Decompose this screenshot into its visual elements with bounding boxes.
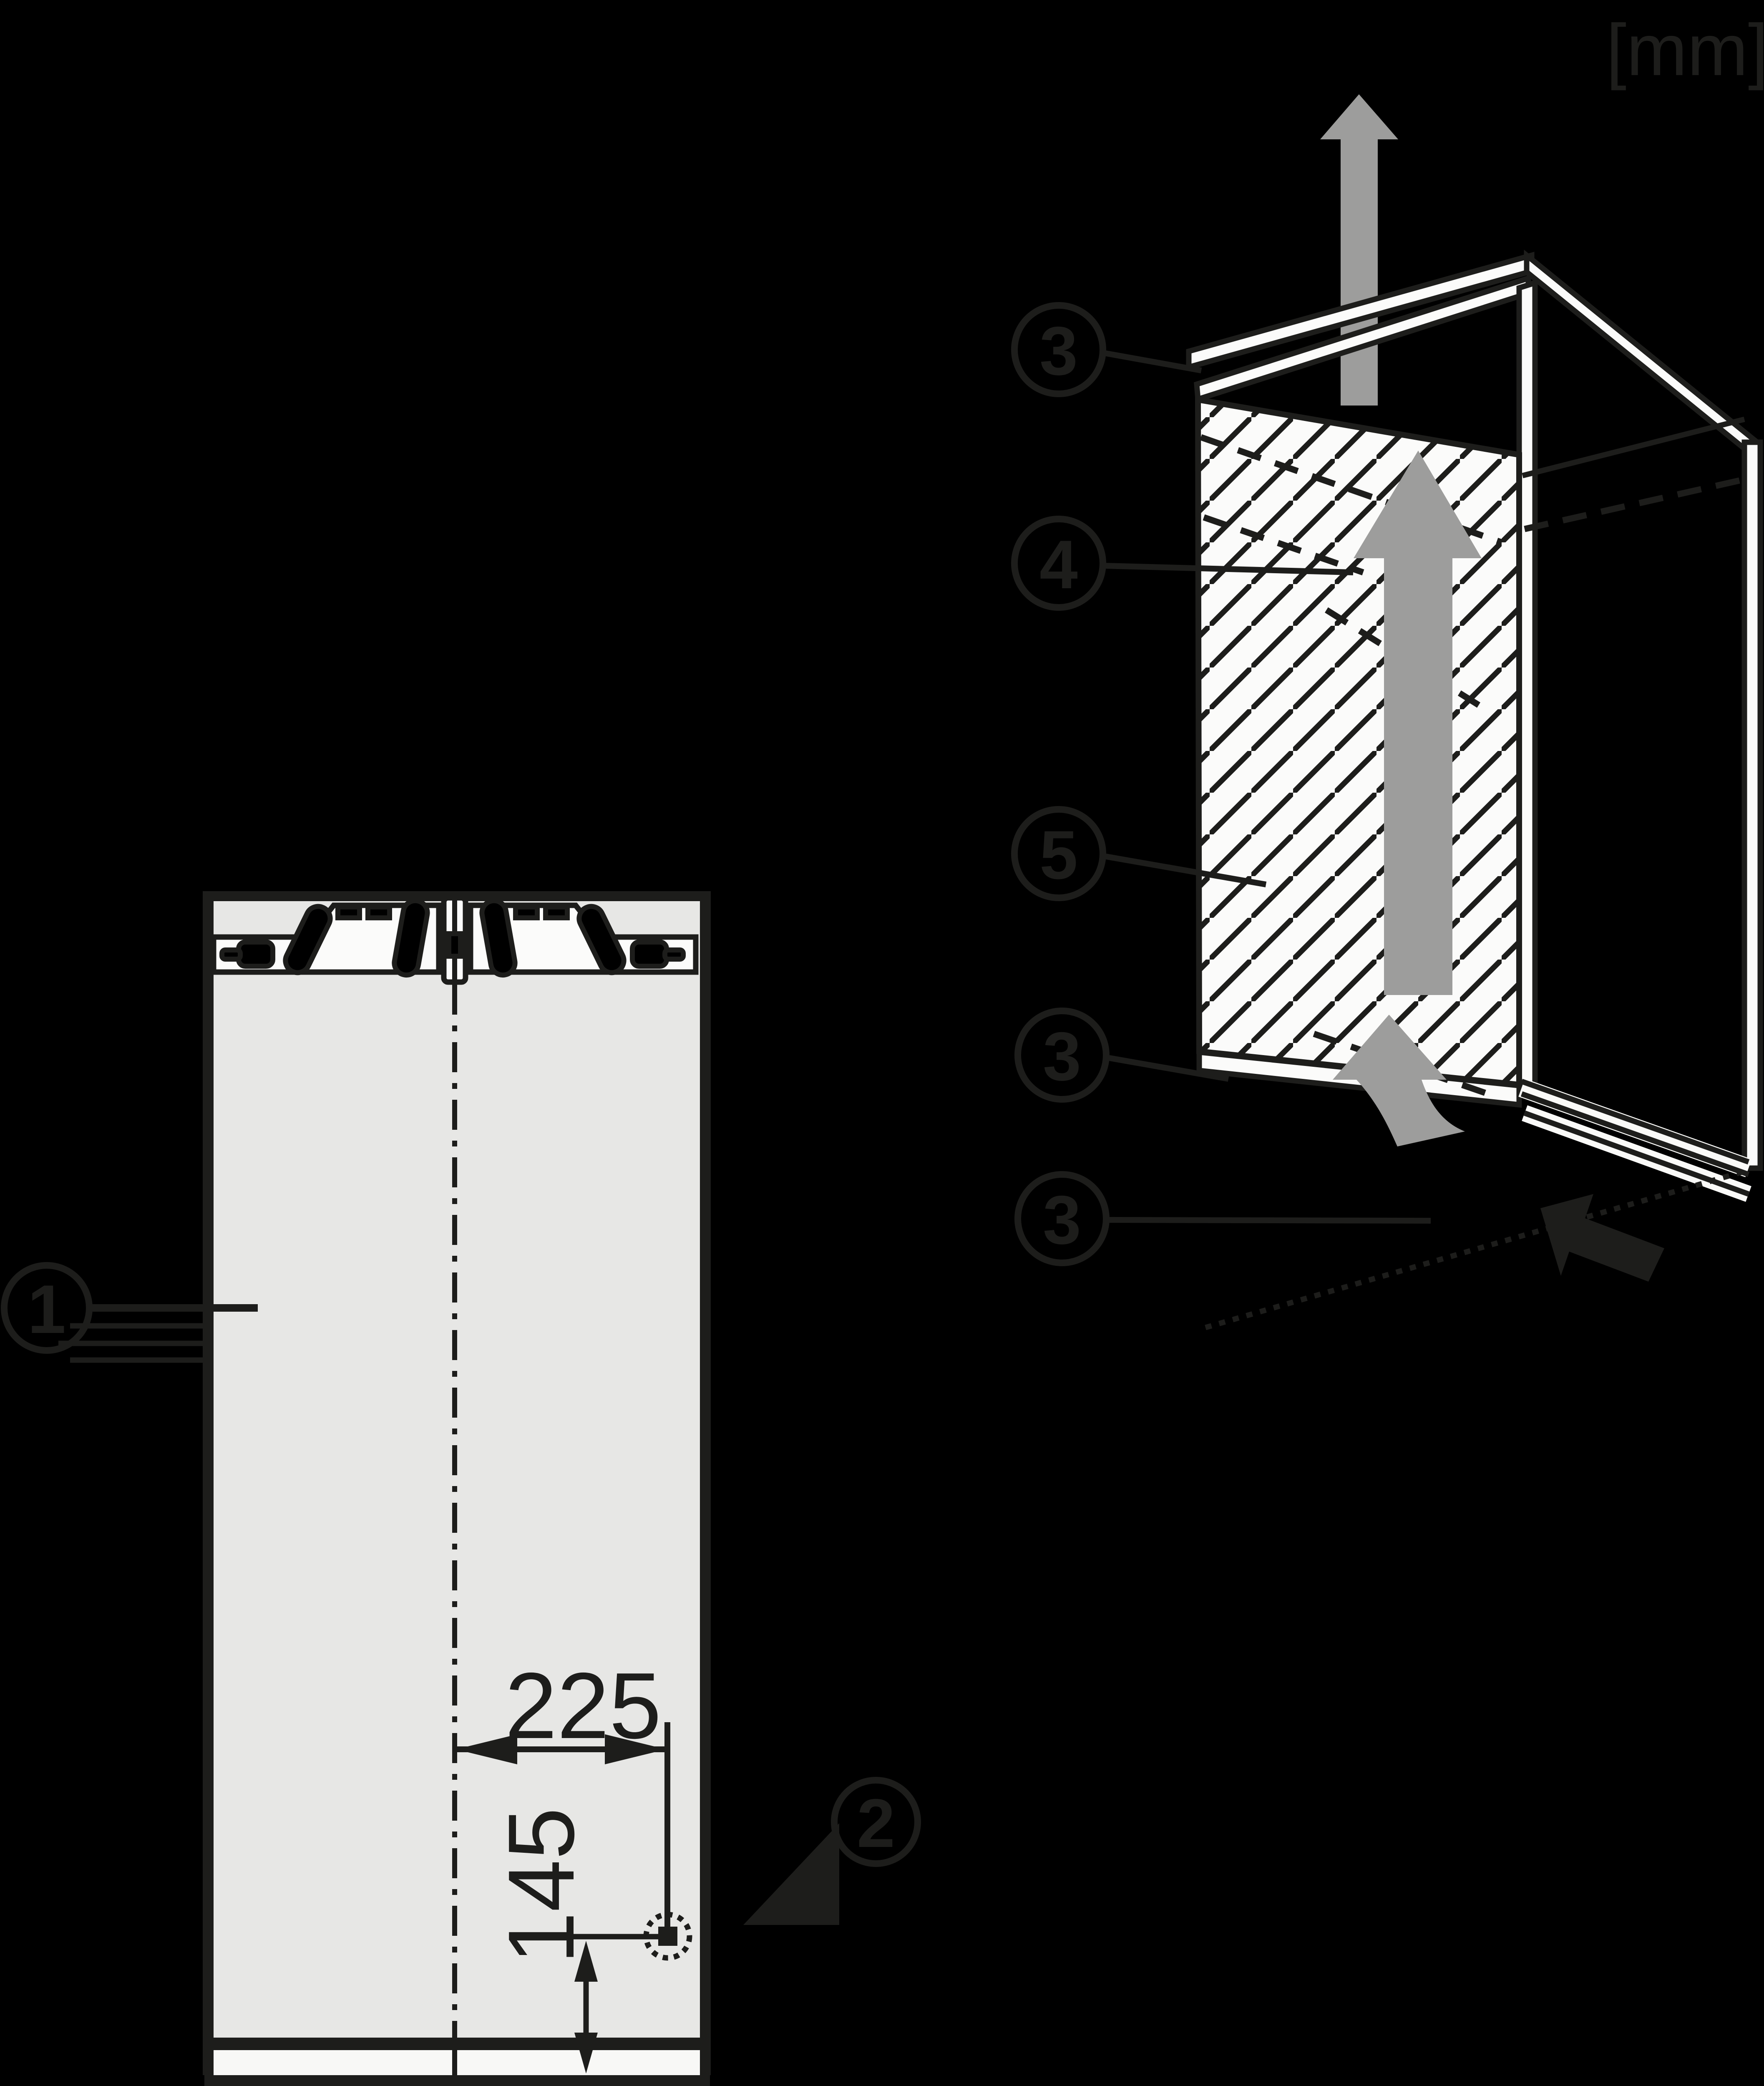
callout-5-number: 5 — [1039, 816, 1078, 893]
base-line — [204, 2075, 710, 2086]
callout-3-middle-number: 3 — [1043, 1018, 1081, 1095]
top-slot-right-a — [516, 907, 537, 918]
callout-1-number: 1 — [28, 1271, 66, 1348]
appliance-right-border — [700, 891, 711, 2075]
top-slot-left-a — [338, 907, 360, 918]
dim-145-value: 145 — [488, 1807, 594, 1964]
top-slot-right-b — [546, 907, 567, 918]
unit-label: [mm] — [1606, 10, 1764, 91]
callout-3-top-number: 3 — [1039, 312, 1078, 389]
top-slot-left-b — [368, 907, 390, 918]
center-clip-slot — [449, 934, 461, 956]
keyhole-slot-left-neck — [222, 950, 240, 959]
callout-3-bottom-number: 3 — [1043, 1182, 1081, 1258]
installation-diagram: [mm] — [0, 0, 1764, 2086]
callout-3-bottom-leader — [1107, 1220, 1431, 1221]
callout-4-number: 4 — [1039, 526, 1078, 603]
keyhole-slot-left-head — [239, 942, 273, 966]
niche-right-wall-edge — [1744, 442, 1760, 1168]
panel-hatching — [1198, 400, 1519, 1085]
keyhole-slot-right-head — [632, 942, 667, 966]
dim-225-value: 225 — [505, 1653, 661, 1758]
appliance-left-border — [203, 891, 214, 2075]
diagram-canvas: [mm] — [0, 0, 1764, 2086]
callout-2-number: 2 — [857, 1785, 895, 1862]
keyhole-slot-right-neck — [665, 950, 683, 959]
